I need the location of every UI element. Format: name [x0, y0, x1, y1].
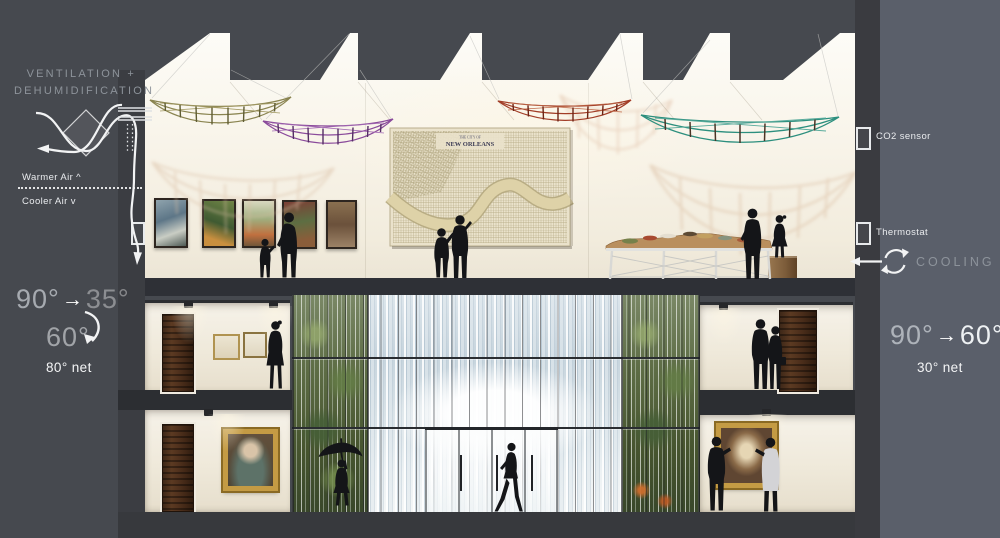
light-cone: [195, 414, 259, 476]
temp-from: 90°: [890, 320, 934, 350]
background-right-panel: [880, 0, 1000, 538]
supply-vent-icon: [131, 222, 145, 245]
door-handle: [531, 455, 533, 491]
mixed-temperature: 60°: [46, 322, 90, 353]
mid-floor-slab-right: [695, 390, 855, 415]
framed-painting: [154, 198, 188, 248]
carried-gold-framed-portrait: [716, 423, 777, 488]
cooling-label: COOLING: [916, 255, 995, 269]
atrium-waterfall-glass-wall: [292, 295, 700, 512]
building-base-slab: [118, 512, 855, 538]
air-separation-dotted-line: [18, 187, 142, 189]
curtain-wall-frame: [698, 295, 700, 512]
co2-sensor-icon: [856, 127, 871, 150]
left-net-temperature: 80° net: [46, 360, 92, 375]
thermostat-label: Thermostat: [876, 227, 928, 238]
right-temperature-annotation: 90°→60°: [890, 320, 1000, 351]
framed-painting: [202, 199, 236, 248]
ventilation-label-line2: DEHUMIDIFICATION: [14, 83, 136, 100]
ventilation-label: VENTILATION + DEHUMIDIFICATION: [14, 66, 136, 100]
light-cone: [158, 306, 222, 368]
light-cone: [692, 308, 756, 370]
thermostat-icon: [856, 222, 871, 245]
arrow-right-icon: →: [60, 288, 86, 311]
heat-exchanger-icon: [63, 110, 109, 156]
cooler-air-label: Cooler Air v: [22, 196, 76, 207]
door-handle: [460, 455, 462, 491]
curtain-wall-frame: [292, 295, 294, 512]
arrow-right-icon: →: [934, 324, 960, 347]
atrium-glass-doors: [425, 427, 558, 515]
temp-to: 35°: [86, 284, 130, 314]
door-frame-line: [425, 430, 427, 515]
framed-painting: [326, 200, 357, 249]
wood-door: [160, 422, 196, 514]
framed-painting: [242, 199, 276, 248]
building-right-wall-band: [855, 0, 880, 538]
museum-section-diagram: VENTILATION + DEHUMIDIFICATION Warmer Ai…: [0, 0, 1000, 538]
door-frame-line: [556, 430, 558, 515]
door-frame-line: [524, 430, 526, 515]
left-arrowhead-icon: [37, 145, 49, 154]
temp-from: 90°: [16, 284, 60, 314]
door-frame-line: [491, 430, 493, 515]
curtain-wall-frame: [621, 295, 623, 512]
right-net-temperature: 30° net: [917, 360, 963, 375]
horizontal-mullion: [292, 357, 700, 359]
door-handle: [496, 455, 498, 491]
ventilation-label-line1: VENTILATION +: [14, 66, 136, 83]
curtain-wall-frame: [367, 295, 369, 512]
top-gallery-section: [145, 33, 855, 290]
skylight-glow: [325, 63, 705, 213]
warmer-air-label: Warmer Air ^: [22, 172, 81, 183]
co2-sensor-label: CO2 sensor: [876, 131, 931, 142]
wooden-pedestal: [768, 256, 797, 278]
upper-floor-slab: [145, 278, 855, 296]
mid-floor-slab-left: [118, 390, 295, 410]
wood-door: [777, 308, 819, 394]
framed-painting: [282, 200, 317, 249]
left-temperature-annotation: 90°→35°: [16, 284, 130, 315]
temp-to: 60°: [960, 320, 1000, 350]
